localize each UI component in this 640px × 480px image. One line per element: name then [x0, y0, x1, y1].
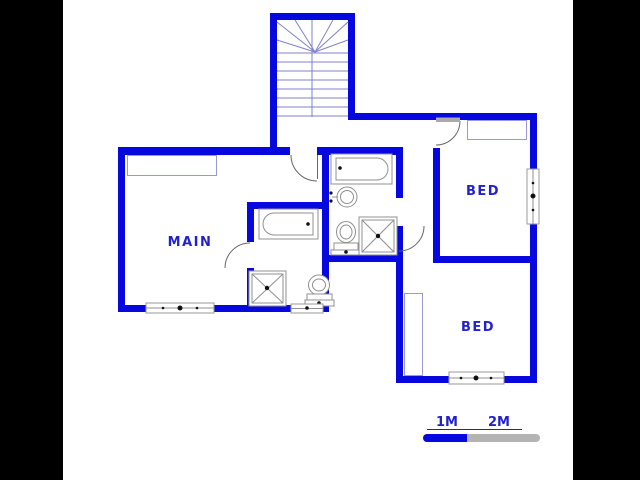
bathtub-family: [331, 154, 392, 184]
wall-bed1-left: [433, 148, 440, 263]
wall-hall-top-right: [317, 147, 403, 155]
wall-bath-bottom: [322, 255, 403, 262]
room-label-main: MAIN: [150, 235, 230, 250]
wall-hall-vert-lower: [396, 226, 403, 383]
wall-hall-top-left: [118, 147, 290, 155]
wall-bath-divider: [322, 147, 329, 312]
scale-bar-2m-segment: [467, 434, 540, 442]
wall-bed2-bottom: [397, 376, 537, 383]
cupboard-main-bedroom: [128, 156, 217, 176]
plan-linework: [0, 0, 640, 480]
room-label-bed2: BED: [438, 320, 518, 335]
wall-main-right-upper: [247, 202, 254, 242]
letterbox-right: [573, 0, 640, 480]
wall-ensuite-top: [247, 202, 329, 209]
staircase: [277, 20, 348, 117]
wall-stair-top: [270, 13, 355, 20]
wall-top-right: [348, 113, 537, 120]
letterbox-left: [0, 0, 63, 480]
shower-family: [359, 217, 397, 255]
scale-bar-underline: [427, 429, 522, 430]
toilet-family: [331, 222, 361, 256]
scale-label-1m: 1M: [427, 415, 467, 430]
toilet-ensuite: [305, 275, 334, 306]
floor-plan-canvas: MAIN BED BED 1M 2M: [0, 0, 640, 480]
cupboard-bedroom-1: [468, 121, 527, 140]
bathtub-ensuite: [259, 209, 318, 239]
scale-bar-1m-segment: [423, 434, 467, 442]
wall-bottom-exterior: [118, 305, 329, 312]
room-label-bed1: BED: [443, 184, 523, 199]
wall-stair-left: [270, 13, 277, 155]
wall-stair-right: [348, 13, 355, 120]
bed1-door-arc: [436, 121, 460, 145]
wall-main-left: [118, 147, 125, 312]
scale-label-2m: 2M: [479, 415, 519, 430]
wall-right-exterior: [530, 113, 537, 383]
washbasin: [329, 187, 357, 207]
shower-ensuite: [249, 271, 286, 306]
stair-door-arc: [291, 155, 317, 181]
wardrobe-bedroom-2: [405, 294, 423, 376]
wall-bed1-bottom: [433, 256, 537, 263]
